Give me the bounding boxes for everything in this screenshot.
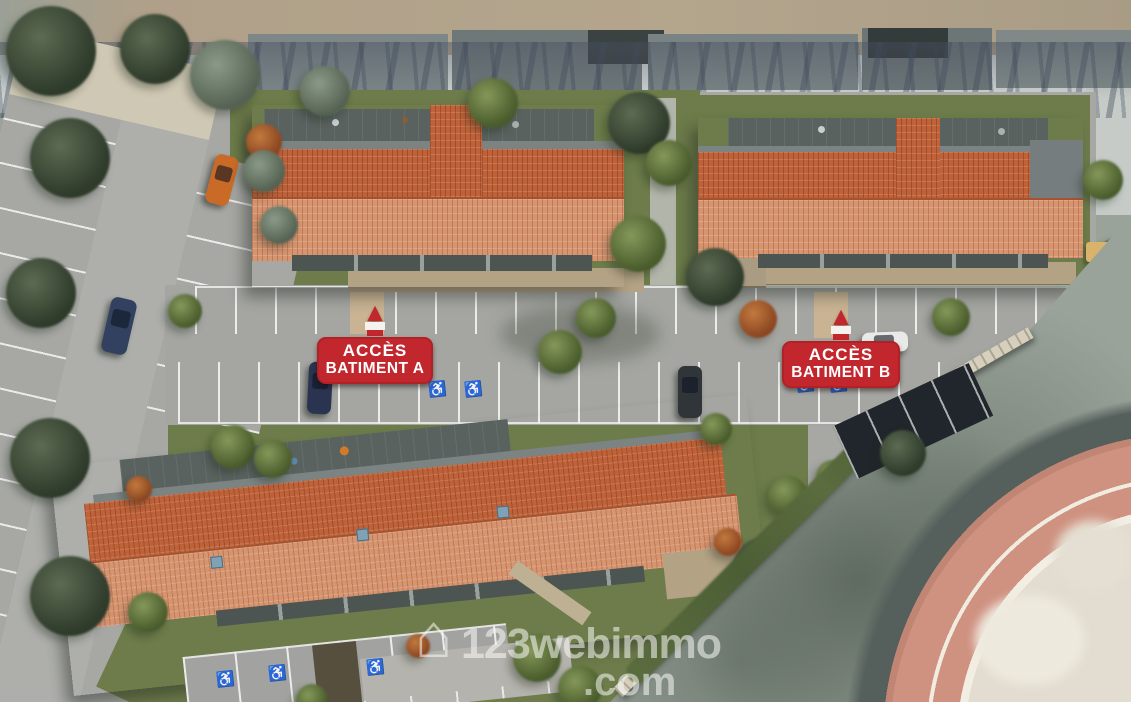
- badge-line2: BATIMENT A: [326, 360, 425, 378]
- badge-box: ACCÈS BATIMENT A: [317, 337, 434, 384]
- curved-building-courtyard: [975, 595, 1085, 685]
- building-a: [252, 105, 624, 287]
- car-window: [110, 309, 131, 329]
- wheelchair-icon: ♿: [215, 669, 235, 689]
- tree: [468, 78, 518, 128]
- skylight: [210, 556, 223, 569]
- up-arrow-icon: ▲: [828, 306, 854, 326]
- tree: [610, 216, 666, 272]
- building-b: [698, 118, 1083, 286]
- building-a-balconies: [292, 255, 592, 271]
- terrace-furniture: [818, 126, 825, 133]
- tree: [168, 294, 202, 328]
- tree: [120, 14, 190, 84]
- tree: [880, 430, 926, 476]
- building-a-roof-lower: [252, 197, 624, 261]
- tree: [190, 40, 260, 110]
- aerial-site-plan: ♿ ♿ ♿ ♿ ♿ ♿ ♿: [0, 0, 1131, 702]
- building-b-roof-lower: [698, 198, 1083, 258]
- shrub: [260, 206, 298, 244]
- tree: [646, 140, 692, 186]
- arrow-post-white: [365, 322, 385, 330]
- badge-line1: ACCÈS: [326, 341, 425, 360]
- arrow-post-red: [833, 334, 849, 340]
- arrow-post-red: [367, 330, 383, 336]
- building-b-balconies: [758, 254, 1048, 268]
- tree: [10, 418, 90, 498]
- wheelchair-icon: ♿: [463, 379, 483, 399]
- tree-red: [714, 528, 742, 556]
- tree: [30, 556, 110, 636]
- wheelchair-icon: ♿: [365, 657, 385, 677]
- tree: [538, 330, 582, 374]
- house-icon: ⌂: [415, 606, 452, 668]
- skylight: [356, 528, 369, 541]
- tree: [6, 258, 76, 328]
- building-b-tower: [1030, 140, 1083, 198]
- car-dark-parked: [678, 366, 702, 418]
- tree: [576, 298, 616, 338]
- tree: [30, 118, 110, 198]
- terrace-furniture: [332, 119, 339, 126]
- building-b-roof-upper: [698, 152, 1083, 198]
- badge-box: ACCÈS BATIMENT B: [782, 341, 899, 388]
- tree: [700, 413, 732, 445]
- tree-red: [126, 476, 152, 502]
- curved-building-courtyard: [1055, 520, 1131, 590]
- skylight: [496, 505, 509, 518]
- watermark: ⌂ 123webimmo .com: [415, 608, 715, 702]
- arrow-post-white: [831, 326, 851, 334]
- badge-acces-batiment-b: ▲ ACCÈS BATIMENT B: [780, 306, 902, 388]
- tree: [6, 6, 96, 96]
- badge-acces-batiment-a: ▲ ACCÈS BATIMENT A: [318, 302, 432, 384]
- badge-line2: BATIMENT B: [791, 364, 890, 382]
- tree: [128, 592, 168, 632]
- tree: [300, 66, 350, 116]
- badge-line1: ACCÈS: [791, 345, 890, 364]
- terrace-furniture: [402, 117, 408, 123]
- car-window: [682, 377, 699, 393]
- tree: [686, 248, 744, 306]
- up-arrow-icon: ▲: [362, 302, 388, 322]
- wheelchair-icon: ♿: [267, 663, 287, 683]
- tree: [211, 425, 255, 469]
- building-b-roof-center: [896, 118, 940, 198]
- shrub: [243, 150, 285, 192]
- tree: [932, 298, 970, 336]
- tree: [254, 440, 292, 478]
- car-window: [214, 164, 234, 183]
- tree: [1083, 160, 1123, 200]
- terrace-furniture: [512, 121, 519, 128]
- terrace-furniture: [998, 128, 1005, 135]
- watermark-suffix: .com: [583, 660, 676, 702]
- tree-red: [739, 300, 777, 338]
